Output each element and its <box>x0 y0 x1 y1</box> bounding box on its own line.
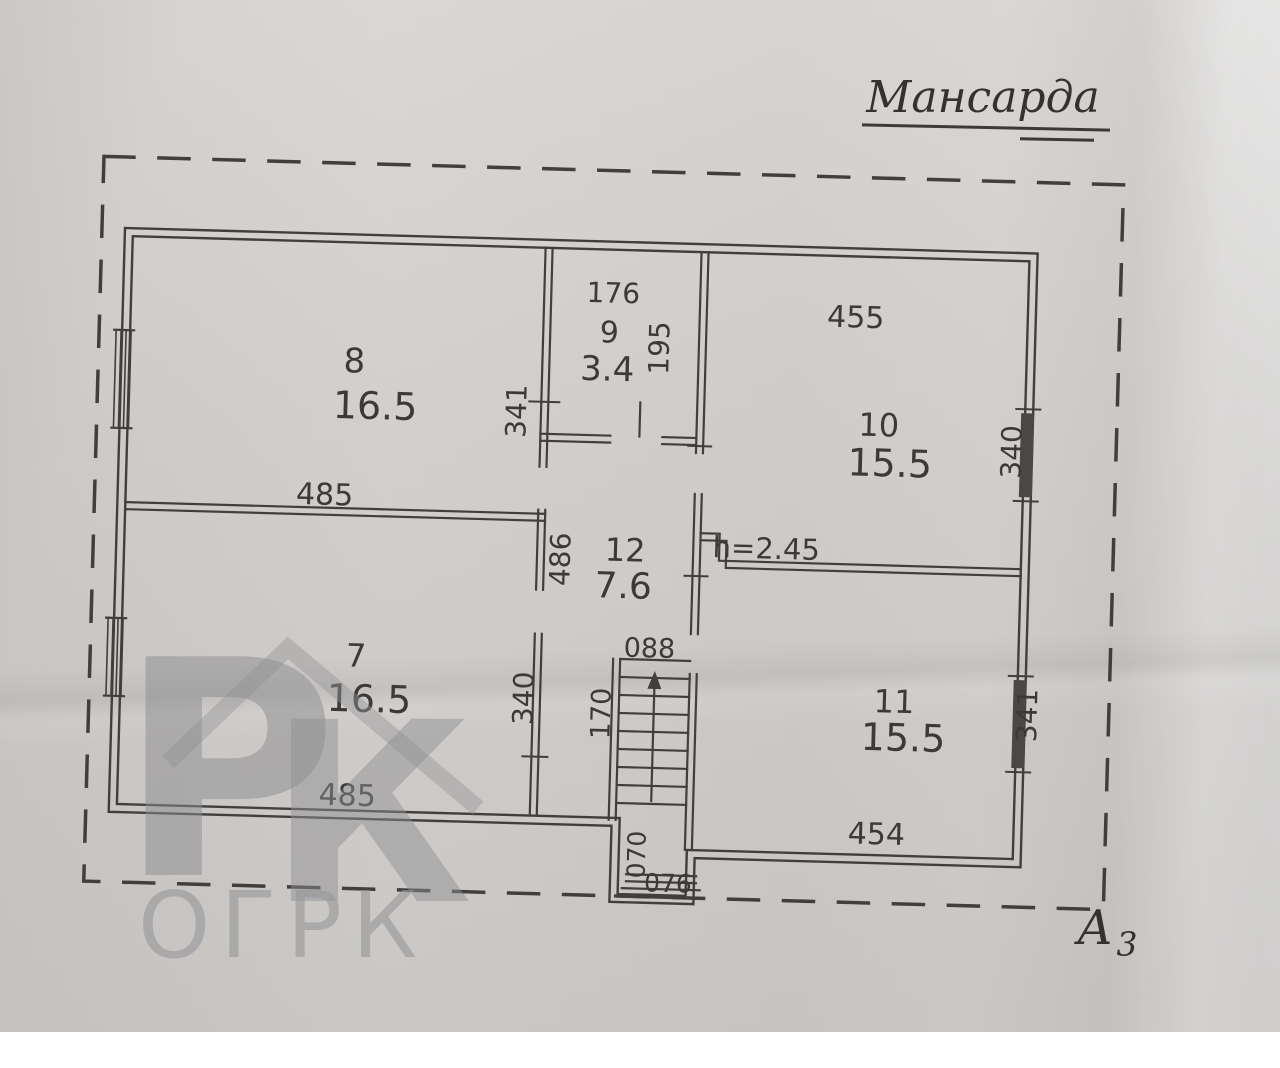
dim-room9-depth: 195 <box>645 321 674 375</box>
room-12-number: 12 <box>604 534 646 567</box>
room-9-area: 3.4 <box>580 352 635 387</box>
room-8-area: 16.5 <box>332 386 418 426</box>
wall-middle-right <box>685 252 709 850</box>
room-10-area: 15.5 <box>847 443 933 483</box>
dim-ceiling-height: h=2.45 <box>712 533 820 565</box>
room-10-number: 10 <box>858 409 900 442</box>
room-7-number: 7 <box>346 639 367 672</box>
room-11-area: 15.5 <box>860 718 946 758</box>
sheet-format-index: 3 <box>1117 928 1138 961</box>
roof-outline-dashed <box>84 156 1124 909</box>
dim-room7-depth: 340 <box>509 671 538 725</box>
dim-room8-depth: 341 <box>502 384 531 438</box>
dim-stairs-length: 170 <box>587 687 615 739</box>
dim-stairs-width: 088 <box>623 635 675 663</box>
sheet-format-letter: А <box>1077 904 1113 952</box>
page-title: Мансарда <box>866 76 1099 120</box>
scanned-floor-plan-page: 8 16.5 9 3.4 10 15.5 12 7.6 7 16.5 11 15… <box>0 0 1280 1032</box>
room-8-number: 8 <box>343 344 366 379</box>
dim-room8-width: 485 <box>296 480 354 512</box>
room-12-area: 7.6 <box>594 568 652 606</box>
staircase <box>609 659 690 822</box>
stairs-direction-arrow-icon <box>644 671 662 801</box>
dim-room9-width: 176 <box>586 279 640 308</box>
dim-room7-width: 485 <box>318 781 376 813</box>
room-9-number: 9 <box>599 318 619 349</box>
window-room7 <box>104 618 126 697</box>
dim-hall12-depth: 486 <box>546 532 575 586</box>
dim-room10-depth: 340 <box>997 425 1026 479</box>
dim-room11-width: 454 <box>847 819 905 851</box>
room-11-number: 11 <box>873 685 915 718</box>
dim-room11-depth: 341 <box>1013 688 1042 742</box>
room-7-area: 16.5 <box>326 679 412 719</box>
wall-room9-bottom <box>540 400 697 445</box>
dim-room10-width: 455 <box>827 303 885 335</box>
dim-exit-width: 076 <box>644 870 692 896</box>
